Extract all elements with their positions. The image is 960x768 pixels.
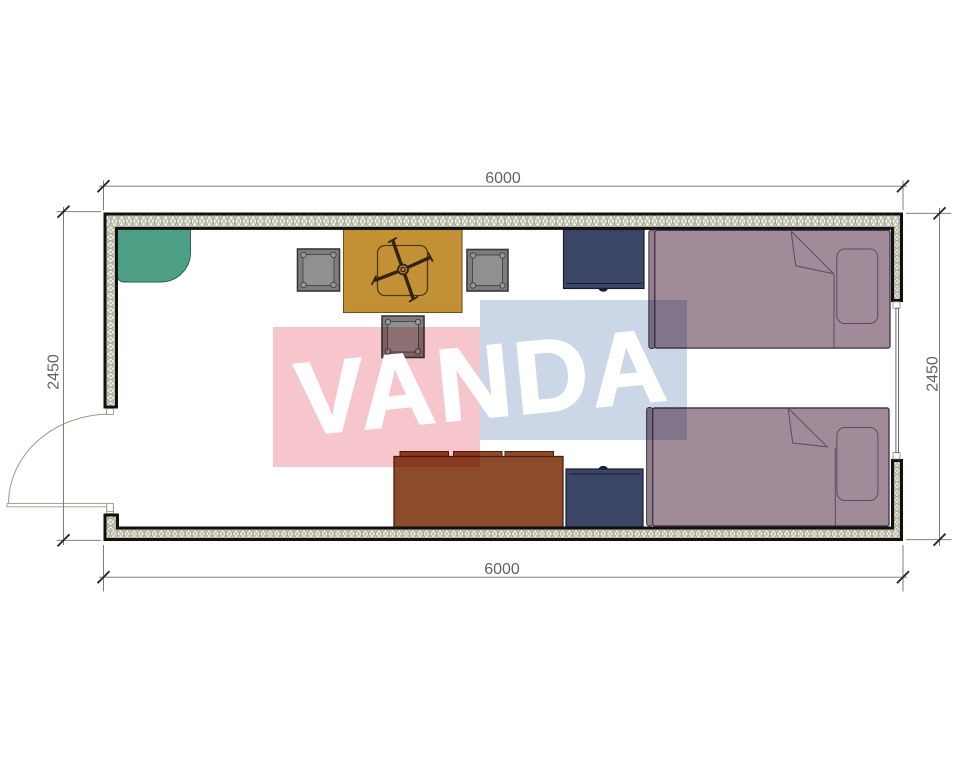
svg-text:6000: 6000 — [484, 561, 520, 578]
svg-text:2450: 2450 — [46, 354, 63, 390]
svg-text:2450: 2450 — [925, 356, 942, 392]
svg-text:6000: 6000 — [485, 170, 521, 187]
